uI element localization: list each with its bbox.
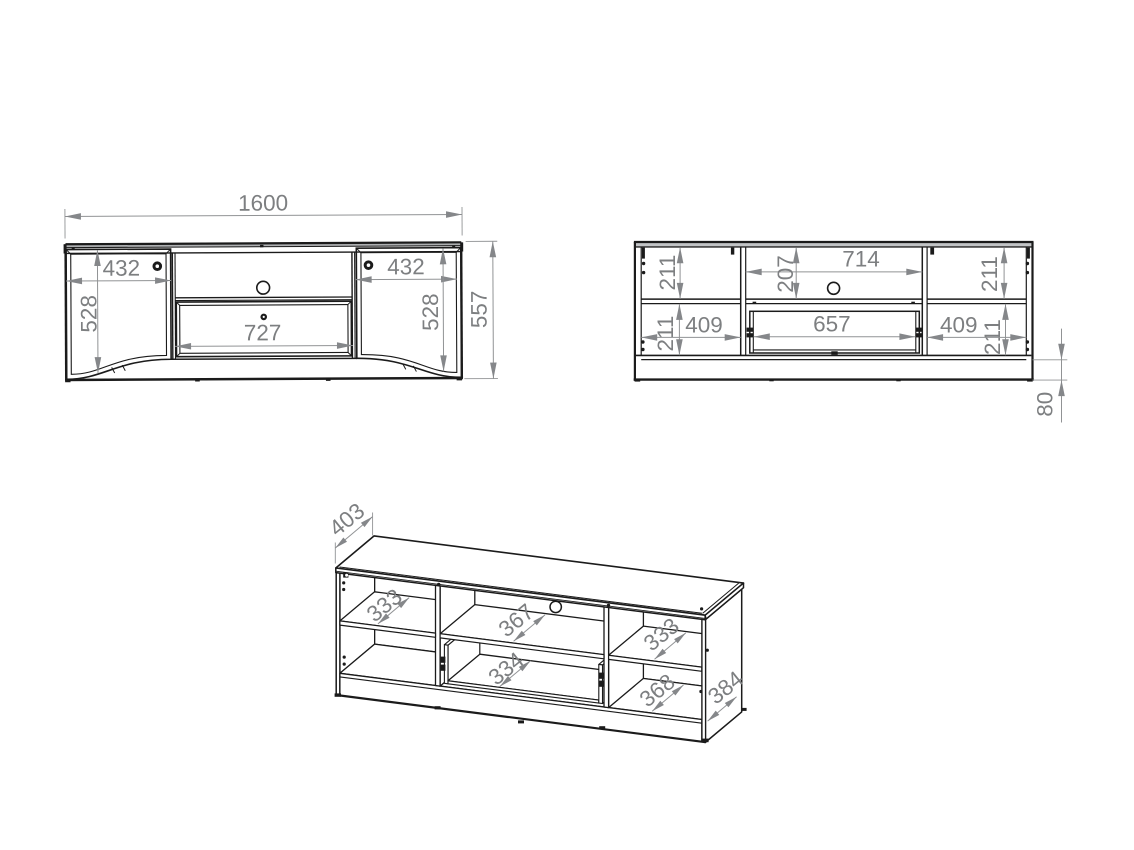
svg-text:528: 528 [418, 293, 443, 331]
svg-text:657: 657 [813, 312, 851, 337]
svg-text:432: 432 [103, 256, 141, 281]
svg-text:80: 80 [1033, 392, 1058, 417]
svg-text:432: 432 [387, 254, 425, 279]
svg-text:211: 211 [977, 256, 1002, 292]
svg-text:409: 409 [685, 312, 723, 337]
svg-text:727: 727 [244, 320, 282, 345]
svg-text:528: 528 [76, 295, 101, 333]
svg-text:207: 207 [773, 255, 798, 293]
svg-text:211: 211 [653, 316, 678, 352]
svg-text:211: 211 [655, 255, 680, 291]
svg-text:1600: 1600 [238, 190, 288, 215]
svg-text:409: 409 [940, 312, 978, 337]
svg-text:714: 714 [842, 246, 880, 271]
svg-text:557: 557 [467, 291, 492, 329]
